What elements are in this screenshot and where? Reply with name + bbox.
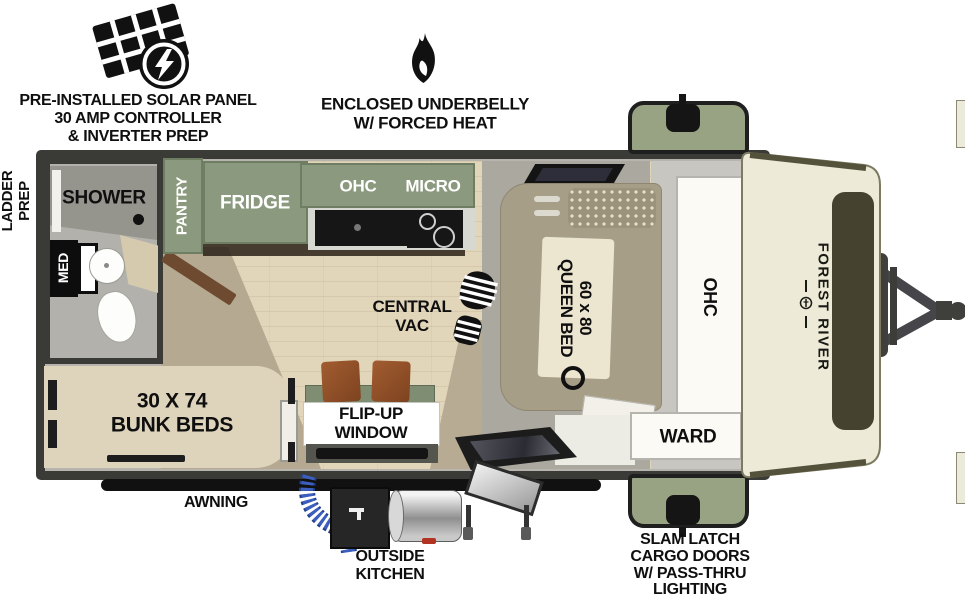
- stool-right: [371, 360, 410, 402]
- burner-small: [419, 213, 436, 230]
- latch-icon-top: [666, 104, 700, 132]
- cargo-callout-line2: CARGO DOORS: [630, 548, 749, 566]
- awning-label: AWNING: [184, 494, 248, 512]
- brand-name: FOREST RIVER: [814, 243, 831, 372]
- cargo-callout-line1: SLAM LATCH: [640, 531, 740, 549]
- edge-sliver-bottom: [956, 452, 965, 504]
- ohc-front-label: OHC: [700, 277, 720, 316]
- burner-large: [433, 226, 455, 248]
- skylight-glass: [535, 168, 613, 181]
- step-leg-right: [524, 505, 529, 529]
- table-mount-ring: [561, 366, 585, 390]
- sink-drain-dot: [104, 263, 109, 268]
- brand-dash-top: [805, 280, 807, 292]
- front-cap-and-hitch: [740, 95, 965, 505]
- outside-kitchen-label: OUTSIDE KITCHEN: [355, 548, 424, 584]
- solar-callout-line2: 30 AMP CONTROLLER: [54, 110, 221, 128]
- underbelly-callout-line1: ENCLOSED UNDERBELLY: [321, 94, 529, 113]
- flame-icon: [404, 32, 444, 88]
- shower-head-dot: [133, 214, 144, 225]
- griddle-valve-red: [422, 538, 436, 544]
- ladder-prep-callout: LADDER PREP: [0, 171, 34, 232]
- headboard-slat2: [534, 210, 560, 216]
- flip-up-window-glass: [316, 448, 428, 459]
- central-vac-label: CENTRAL VAC: [372, 297, 451, 335]
- solar-callout-line3: & INVERTER PREP: [68, 128, 208, 146]
- step-foot-right: [521, 527, 531, 540]
- brand-dash-bottom: [805, 316, 807, 328]
- bunk-bottom-trim: [107, 455, 185, 462]
- forest-river-logo-icon: [799, 296, 813, 310]
- underbelly-callout-line2: W/ FORCED HEAT: [354, 113, 497, 132]
- fridge-label: FRIDGE: [220, 192, 290, 213]
- shower-wall-highlight: [52, 170, 61, 232]
- latch-stem-top: [679, 94, 686, 104]
- bunk-wall-bracket1: [48, 380, 57, 410]
- bed-pillow: [568, 188, 656, 228]
- cooktop: [315, 210, 407, 246]
- cargo-callout-line4: LIGHTING: [653, 581, 727, 598]
- step-foot-left: [463, 527, 473, 540]
- bunk-end-trim2: [288, 442, 295, 462]
- floorplan-diagram: PRE-INSTALLED SOLAR PANEL 30 AMP CONTROL…: [0, 0, 965, 598]
- med-label: MED: [56, 253, 72, 283]
- step-leg-left: [466, 505, 471, 529]
- cooktop-knob: [354, 224, 361, 231]
- latch-icon-bottom: [666, 495, 700, 525]
- shower-label: SHOWER: [62, 187, 146, 208]
- solar-callout-line1: PRE-INSTALLED SOLAR PANEL: [19, 92, 256, 110]
- stool-left: [321, 360, 361, 403]
- griddle-endcap: [388, 490, 404, 542]
- flip-up-window-label: FLIP-UP WINDOW: [335, 404, 408, 442]
- ward-label: WARD: [660, 426, 717, 447]
- bunk-end-trim: [288, 378, 295, 404]
- bunk-wall-bracket2: [48, 420, 57, 448]
- pantry-label: PANTRY: [175, 177, 192, 235]
- ohc-kitchen-label: OHC: [340, 176, 377, 195]
- bunk-label: 30 X 74 BUNK BEDS: [111, 389, 233, 436]
- hitch-icon: [873, 253, 965, 357]
- headboard-slat1: [534, 196, 560, 202]
- micro-label: MICRO: [405, 176, 460, 195]
- solar-panel-icon: [88, 2, 198, 94]
- outside-faucet-stem: [357, 508, 361, 520]
- edge-sliver-top: [956, 100, 965, 148]
- queen-bed-label: 60 x 80 QUEEN BED: [557, 259, 595, 357]
